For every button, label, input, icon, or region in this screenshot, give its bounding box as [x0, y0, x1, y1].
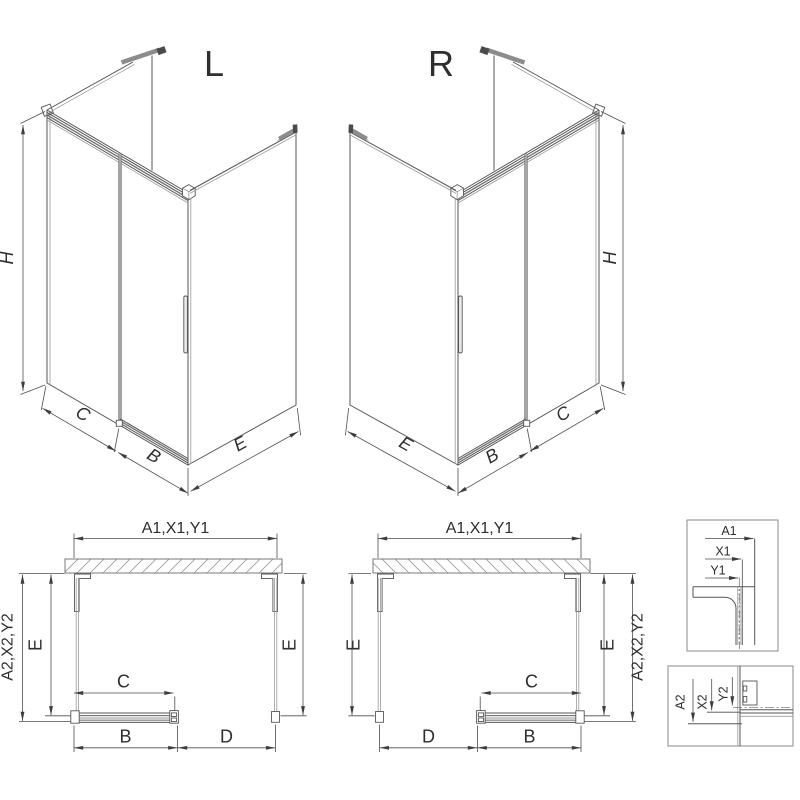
detail-bottom-dim-x: X2 [696, 694, 710, 709]
iso-left-geometry [21, 49, 301, 496]
plan-right-geometry [349, 534, 637, 753]
plan-right-dim-door: B [523, 727, 535, 747]
variant-label-left: L [204, 43, 224, 84]
detail-bottom-dim-y: Y2 [717, 686, 731, 701]
iso-right-dim-side: E [396, 432, 417, 456]
plan-left-dim-door: B [119, 727, 131, 747]
plan-left-geometry [19, 534, 307, 753]
plan-right-dim-e-left: E [344, 639, 364, 651]
detail-view-top: A1 X1 Y1 [687, 520, 778, 651]
iso-left-dim-height: H [0, 251, 17, 265]
plan-left-dim-e-left: E [26, 639, 46, 651]
iso-left-dim-door: B [144, 444, 164, 467]
iso-right-dim-height: H [600, 251, 620, 265]
plan-right-dim-clear: C [525, 672, 538, 692]
plan-left-dim-top: A1,X1,Y1 [142, 520, 210, 537]
detail-top-dim-y: Y1 [710, 564, 725, 578]
plan-right-dim-top: A1,X1,Y1 [446, 520, 514, 537]
plan-view-right: A1,X1,Y1 A2,X2,Y2 E E C D B [344, 520, 647, 752]
plan-right-dim-opening: D [422, 727, 435, 747]
plan-right-dim-e-right: E [598, 639, 618, 651]
iso-left-dim-fixed: C [72, 402, 94, 426]
iso-right-dim-door: B [482, 444, 502, 467]
iso-left-dim-side: E [230, 432, 251, 456]
detail-view-bottom: A2 X2 Y2 [668, 666, 793, 746]
iso-view-left: L H C B E [0, 43, 301, 496]
detail-top-frame [687, 520, 778, 651]
variant-label-right: R [428, 43, 454, 84]
iso-right-geometry [345, 49, 625, 496]
plan-left-dim-e-right: E [280, 639, 300, 651]
detail-top-dim-a: A1 [721, 524, 736, 538]
plan-left-dim-clear: C [117, 672, 130, 692]
iso-right-dim-fixed: C [552, 401, 574, 425]
plan-left-dim-outer: A2,X2,Y2 [0, 613, 17, 681]
technical-drawing: L H C B E R H C B E A1,X1,Y1 A2,X2,Y2 E … [0, 0, 800, 800]
detail-bottom-dim-a: A2 [674, 694, 688, 709]
plan-right-dim-outer: A2,X2,Y2 [630, 613, 647, 681]
detail-top-dim-x: X1 [715, 545, 730, 559]
plan-left-dim-opening: D [220, 727, 233, 747]
iso-view-right: R H C B E [345, 43, 625, 496]
drawing-sheet: L H C B E R H C B E A1,X1,Y1 A2,X2,Y2 E … [0, 0, 800, 800]
plan-view-left: A1,X1,Y1 A2,X2,Y2 E E C B D [0, 520, 307, 752]
